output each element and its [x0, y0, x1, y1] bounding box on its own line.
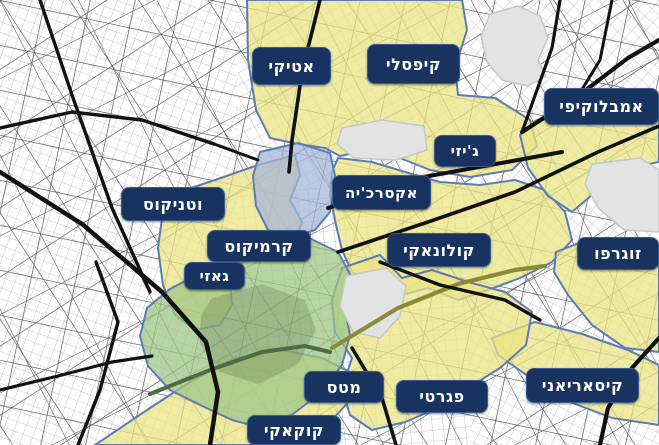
- district-label-text: זוגרפו: [594, 244, 642, 263]
- district-label-exarcheia: אקסרכ'יה: [332, 175, 431, 210]
- district-label-votanikos: וטניקוס: [121, 187, 225, 221]
- district-label-gazi: גאזי: [184, 262, 245, 290]
- district-label-text: קוקאקי: [264, 421, 324, 440]
- district-label-text: קרמיקוס: [224, 237, 293, 256]
- district-labels-layer: אטיקיקיפסליאמבלוקיפיג'יזיאקסרכ'יהוטניקוס…: [0, 0, 659, 445]
- district-label-kolonaki: קולונאקי: [387, 233, 491, 267]
- district-label-text: קולונאקי: [403, 241, 475, 260]
- map-canvas[interactable]: אטיקיקיפסליאמבלוקיפיג'יזיאקסרכ'יהוטניקוס…: [0, 0, 659, 445]
- district-label-text: ג'יזי: [451, 142, 480, 160]
- district-label-ambelokipi: אמבלוקיפי: [544, 88, 659, 125]
- district-label-text: אקסרכ'יה: [345, 184, 418, 202]
- district-label-pangrati: פגרטי: [396, 380, 488, 413]
- district-label-kerameikos: קרמיקוס: [207, 230, 311, 262]
- district-label-text: גאזי: [199, 267, 229, 285]
- district-label-attiki: אטיקי: [252, 47, 331, 85]
- district-label-gyzi: ג'יזי: [434, 135, 496, 167]
- district-label-text: פגרטי: [419, 387, 464, 406]
- district-label-text: וטניקוס: [143, 195, 203, 214]
- district-label-text: קיסאריאני: [542, 376, 623, 395]
- district-label-text: אטיקי: [268, 57, 314, 76]
- district-label-kaisariani: קיסאריאני: [526, 368, 639, 403]
- district-label-koukaki: קוקאקי: [247, 415, 341, 445]
- district-label-text: מטס: [327, 378, 362, 397]
- district-label-zografou: זוגרפו: [577, 237, 659, 270]
- district-label-text: קיפסלי: [386, 55, 441, 74]
- district-label-mets: מטס: [304, 371, 384, 403]
- district-label-kypseli: קיפסלי: [367, 44, 460, 84]
- district-label-text: אמבלוקיפי: [559, 97, 643, 116]
